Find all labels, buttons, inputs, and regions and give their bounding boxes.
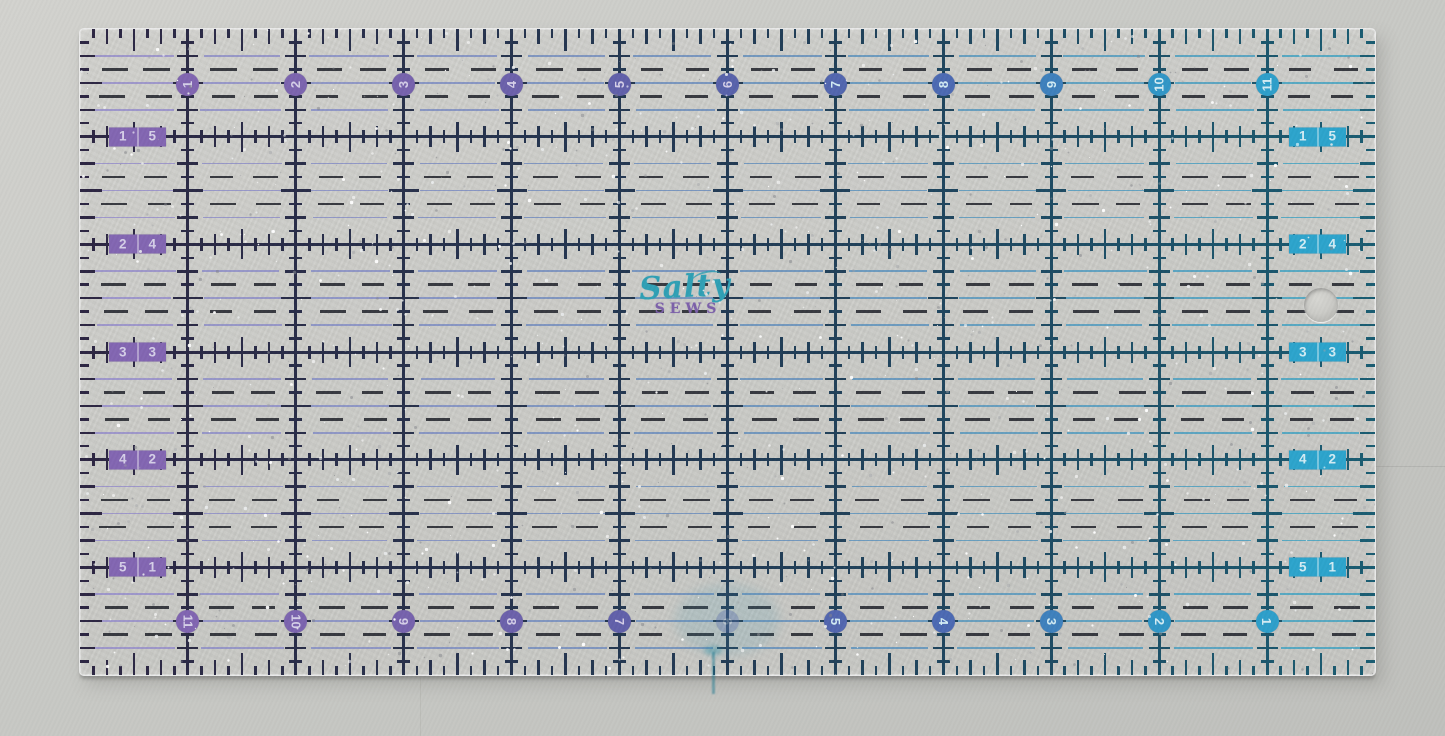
- inch-number-bottom: 11: [176, 610, 199, 633]
- inch-number-bottom-label: 10: [289, 614, 302, 628]
- edge-tick-right: [1360, 55, 1375, 58]
- quarter-inch-line: [632, 270, 715, 272]
- tick-mark: [1279, 453, 1282, 466]
- tick-mark: [861, 126, 864, 147]
- tick-mark: [106, 449, 109, 470]
- eighth-inch-dash: [858, 418, 884, 421]
- edge-tick-right: [1366, 283, 1375, 286]
- tick-mark: [1144, 405, 1174, 408]
- tick-mark: [376, 342, 379, 363]
- tick-mark: [937, 660, 950, 663]
- tick-mark: [376, 449, 379, 470]
- tick-mark: [505, 41, 518, 44]
- inch-number-top-label: 5: [613, 81, 626, 88]
- eighth-inch-dash: [576, 418, 600, 421]
- tick-mark: [794, 130, 797, 143]
- tick-mark: [956, 561, 959, 574]
- quarter-inch-line: [958, 109, 1034, 111]
- eighth-inch-dash: [1119, 391, 1145, 394]
- tick-mark: [740, 130, 743, 143]
- eighth-inch-dash: [147, 526, 174, 529]
- tick-mark: [1063, 346, 1066, 359]
- tick-mark: [397, 41, 410, 44]
- edge-tick-top: [376, 29, 379, 44]
- tick-mark: [829, 526, 842, 529]
- quarter-inch-line: [1068, 647, 1144, 649]
- quarter-inch-line: [635, 297, 713, 299]
- eighth-inch-dash: [316, 391, 342, 394]
- tick-mark: [1045, 68, 1058, 71]
- edge-tick-left: [80, 162, 95, 165]
- quarter-inch-line: [957, 620, 1034, 622]
- eighth-inch-dash: [685, 391, 709, 394]
- tick-mark: [505, 337, 518, 340]
- tick-mark: [996, 552, 999, 582]
- tick-mark: [200, 346, 203, 359]
- eighth-inch-dash: [794, 526, 816, 529]
- tick-mark: [289, 472, 302, 475]
- tick-mark: [505, 472, 518, 475]
- eighth-inch-dash: [320, 283, 344, 286]
- tick-mark: [613, 364, 626, 367]
- tick-mark: [1023, 557, 1026, 578]
- tick-mark: [829, 364, 842, 367]
- tick-mark: [1171, 346, 1174, 359]
- eighth-inch-dash: [363, 633, 386, 636]
- eighth-inch-dash: [576, 633, 600, 636]
- tick-mark: [613, 122, 626, 125]
- quarter-inch-line: [849, 620, 928, 622]
- tick-mark: [524, 561, 527, 574]
- eighth-inch-dash: [1289, 68, 1311, 71]
- quarter-inch-line: [200, 593, 279, 595]
- row-label-right-value-a: 3: [1289, 343, 1317, 362]
- edge-tick-top: [537, 29, 540, 44]
- quarter-inch-line: [309, 486, 388, 488]
- quarter-inch-line: [848, 163, 928, 165]
- quarter-inch-line: [204, 297, 282, 299]
- edge-tick-bottom: [672, 653, 675, 675]
- tick-mark: [1257, 216, 1278, 219]
- eighth-inch-dash: [686, 203, 712, 206]
- tick-mark: [825, 647, 846, 650]
- tick-mark: [349, 337, 352, 367]
- edge-tick-bottom: [429, 660, 432, 675]
- eighth-inch-dash: [856, 310, 881, 313]
- tick-mark: [181, 337, 194, 340]
- tick-mark: [969, 342, 972, 363]
- quarter-inch-line: [420, 513, 499, 515]
- tick-mark: [1144, 297, 1174, 300]
- inch-number-bottom: 10: [284, 610, 307, 633]
- tick-mark: [928, 405, 958, 408]
- tick-mark: [173, 297, 203, 300]
- edge-tick-top: [1077, 29, 1080, 44]
- eighth-inch-dash: [1290, 606, 1313, 609]
- tick-mark: [1185, 234, 1188, 255]
- edge-tick-left: [80, 82, 102, 85]
- edge-tick-bottom: [1320, 653, 1323, 675]
- tick-mark: [537, 234, 540, 255]
- tick-mark: [1225, 346, 1228, 359]
- tick-mark: [1261, 230, 1274, 233]
- tick-mark: [214, 342, 217, 363]
- quarter-inch-line: [744, 163, 821, 165]
- quarter-inch-line: [959, 163, 1038, 165]
- tick-mark: [609, 109, 630, 112]
- eighth-inch-dash: [536, 418, 561, 421]
- tick-mark: [672, 552, 675, 582]
- tick-mark: [721, 526, 734, 529]
- quarter-inch-line: [417, 297, 497, 299]
- tick-mark: [721, 445, 734, 448]
- tick-mark: [767, 453, 770, 466]
- tick-mark: [268, 557, 271, 578]
- eighth-inch-dash: [860, 606, 884, 609]
- row-label-right-value-b: 2: [1319, 450, 1347, 469]
- eighth-inch-dash: [1290, 499, 1314, 502]
- eighth-inch-dash: [792, 95, 817, 98]
- quarter-inch-line: [742, 620, 819, 622]
- eighth-inch-dash: [903, 526, 930, 529]
- tick-mark: [825, 593, 846, 596]
- quarter-inch-line: [309, 513, 392, 515]
- tick-mark: [721, 364, 734, 367]
- tick-mark: [937, 203, 950, 206]
- tick-mark: [1261, 176, 1274, 179]
- tick-mark: [1045, 391, 1058, 394]
- tick-mark: [1153, 257, 1166, 260]
- edge-tick-left: [80, 230, 89, 233]
- tick-mark: [393, 593, 414, 596]
- edge-tick-top: [214, 29, 217, 44]
- tick-mark: [177, 55, 198, 58]
- tick-mark: [1041, 539, 1062, 542]
- quarter-inch-line: [636, 486, 715, 488]
- edge-tick-bottom: [1225, 666, 1228, 675]
- inch-number-top: 10: [1148, 73, 1171, 96]
- tick-mark: [848, 561, 851, 574]
- quarter-inch-line: [849, 270, 927, 272]
- eighth-inch-dash: [1182, 68, 1208, 71]
- eighth-inch-dash: [210, 176, 233, 179]
- tick-mark: [1131, 449, 1134, 470]
- tick-mark: [591, 449, 594, 470]
- quarter-inch-line: [201, 647, 284, 649]
- edge-tick-top: [254, 29, 257, 38]
- edge-tick-left: [80, 620, 102, 623]
- quarter-inch-line: [635, 647, 713, 649]
- eighth-inch-dash: [467, 499, 493, 502]
- eighth-inch-dash: [1008, 391, 1033, 394]
- tick-mark: [829, 445, 842, 448]
- quarter-inch-line: [742, 405, 820, 407]
- tick-mark: [501, 216, 522, 219]
- tick-mark: [281, 346, 284, 359]
- quarter-inch-line: [740, 378, 823, 380]
- tick-mark: [173, 512, 203, 515]
- tick-mark: [551, 130, 554, 143]
- tick-mark: [609, 593, 630, 596]
- edge-tick-top: [322, 29, 325, 44]
- edge-tick-bottom: [537, 660, 540, 675]
- tick-mark: [92, 238, 95, 251]
- tick-mark: [605, 130, 608, 143]
- edge-tick-top: [308, 29, 311, 38]
- eighth-inch-dash: [1115, 95, 1138, 98]
- tick-mark: [289, 203, 302, 206]
- tick-mark: [825, 162, 846, 165]
- tick-mark: [181, 633, 194, 636]
- tick-mark: [686, 346, 689, 359]
- tick-mark: [902, 561, 905, 574]
- inch-number-top-label: 7: [829, 81, 842, 88]
- quarter-inch-line: [959, 405, 1035, 407]
- tick-mark: [1347, 557, 1350, 578]
- tick-mark: [1279, 130, 1282, 143]
- tick-mark: [1117, 561, 1120, 574]
- tick-mark: [214, 449, 217, 470]
- tick-mark: [289, 633, 302, 636]
- eighth-inch-dash: [749, 203, 775, 206]
- tick-mark: [181, 230, 194, 233]
- tick-mark: [1045, 445, 1058, 448]
- edge-tick-bottom: [308, 666, 311, 675]
- tick-mark: [389, 405, 419, 408]
- eighth-inch-dash: [686, 68, 709, 71]
- tick-mark: [632, 453, 635, 466]
- tick-mark: [416, 453, 419, 466]
- edge-tick-top: [362, 29, 365, 38]
- quarter-inch-line: [850, 217, 927, 219]
- tick-mark: [281, 297, 311, 300]
- quarter-inch-line: [635, 513, 711, 515]
- quarter-inch-line: [848, 593, 928, 595]
- edge-tick-left: [80, 606, 89, 609]
- quarter-inch-line: [1283, 109, 1362, 111]
- tick-mark: [362, 238, 365, 251]
- quarter-inch-line: [417, 540, 497, 542]
- edge-tick-top: [807, 29, 810, 44]
- edge-tick-left: [80, 149, 89, 152]
- eighth-inch-dash: [320, 310, 346, 313]
- tick-mark: [181, 41, 194, 44]
- quarter-inch-line: [960, 324, 1036, 326]
- quarter-inch-line: [849, 109, 929, 111]
- tick-mark: [753, 234, 756, 255]
- quarter-inch-line: [633, 82, 713, 84]
- tick-mark: [1239, 126, 1242, 147]
- eighth-inch-dash: [1072, 68, 1097, 71]
- quarter-inch-line: [959, 217, 1035, 219]
- tick-mark: [214, 234, 217, 255]
- edge-tick-top: [686, 29, 689, 38]
- tick-mark: [1144, 238, 1147, 251]
- tick-mark: [308, 453, 311, 466]
- eighth-inch-dash: [900, 418, 925, 421]
- tick-mark: [1360, 561, 1363, 574]
- eighth-inch-dash: [901, 203, 927, 206]
- tick-mark: [1153, 526, 1166, 529]
- eighth-inch-dash: [1009, 283, 1034, 286]
- tick-mark: [1261, 41, 1274, 44]
- edge-tick-bottom: [956, 666, 959, 675]
- tick-mark: [937, 472, 950, 475]
- inch-number-top: 4: [500, 73, 523, 96]
- tick-mark: [1104, 122, 1107, 152]
- edge-tick-right: [1366, 95, 1375, 98]
- eighth-inch-dash: [688, 526, 713, 529]
- edge-tick-left: [80, 512, 102, 515]
- edge-tick-top: [632, 29, 635, 38]
- edge-tick-left: [80, 337, 89, 340]
- edge-tick-top: [713, 29, 716, 38]
- tick-mark: [825, 378, 846, 381]
- edge-tick-top: [902, 29, 905, 38]
- tick-mark: [177, 162, 198, 165]
- edge-tick-top: [969, 29, 972, 44]
- tick-mark: [397, 337, 410, 340]
- tick-mark: [268, 126, 271, 147]
- eighth-inch-dash: [424, 176, 451, 179]
- eighth-inch-dash: [360, 68, 386, 71]
- tick-mark: [505, 122, 518, 125]
- quarter-inch-line: [525, 297, 606, 299]
- edge-tick-top: [1104, 29, 1107, 51]
- tick-mark: [416, 238, 419, 251]
- eighth-inch-dash: [424, 499, 451, 502]
- tick-mark: [456, 122, 459, 152]
- edge-tick-left: [80, 432, 95, 435]
- edge-tick-right: [1353, 82, 1375, 85]
- tick-mark: [389, 238, 392, 251]
- tick-mark: [609, 539, 630, 542]
- tick-mark: [1261, 526, 1274, 529]
- eighth-inch-dash: [576, 606, 598, 609]
- tick-mark: [996, 229, 999, 259]
- tick-mark: [501, 539, 522, 542]
- quarter-inch-line: [959, 55, 1036, 57]
- tick-mark: [456, 552, 459, 582]
- tick-mark: [393, 378, 414, 381]
- quarter-inch-line: [1067, 432, 1144, 434]
- quarter-inch-line: [956, 540, 1039, 542]
- tick-mark: [821, 346, 824, 359]
- inch-number-bottom-label: 11: [181, 614, 194, 628]
- eighth-inch-dash: [967, 526, 989, 529]
- edge-tick-bottom: [902, 666, 905, 675]
- tick-mark: [613, 499, 626, 502]
- row-label-left-value-a: 2: [109, 235, 137, 254]
- tick-mark: [613, 418, 626, 421]
- tick-mark: [1153, 283, 1166, 286]
- tick-mark: [888, 122, 891, 152]
- tick-mark: [767, 238, 770, 251]
- tick-mark: [1131, 557, 1134, 578]
- eighth-inch-dash: [105, 606, 128, 609]
- edge-tick-top: [133, 29, 136, 51]
- tick-mark: [613, 257, 626, 260]
- tick-mark: [289, 176, 302, 179]
- tick-mark: [672, 122, 675, 152]
- eighth-inch-dash: [318, 203, 344, 206]
- quarter-inch-line: [1174, 486, 1251, 488]
- tick-mark: [753, 342, 756, 363]
- tick-mark: [1149, 324, 1170, 327]
- tick-mark: [1117, 130, 1120, 143]
- edge-tick-top: [767, 29, 770, 38]
- edge-tick-bottom: [1023, 660, 1026, 675]
- edge-tick-right: [1360, 593, 1375, 596]
- edge-tick-left: [80, 41, 89, 44]
- edge-tick-left: [80, 109, 95, 112]
- tick-mark: [929, 561, 932, 574]
- edge-tick-bottom: [416, 666, 419, 675]
- row-label-left: 51: [109, 558, 166, 577]
- tick-mark: [996, 122, 999, 152]
- tick-mark: [613, 310, 626, 313]
- row-label-right-value-b: 1: [1319, 558, 1347, 577]
- tick-mark: [605, 238, 608, 251]
- eighth-inch-dash: [1071, 526, 1096, 529]
- edge-tick-top: [645, 29, 648, 44]
- quarter-inch-line: [740, 109, 823, 111]
- edge-tick-top: [740, 29, 743, 38]
- tick-mark: [177, 593, 198, 596]
- edge-tick-bottom: [794, 666, 797, 675]
- tick-mark: [289, 68, 302, 71]
- tick-mark: [241, 552, 244, 582]
- row-label-left-value-a: 4: [109, 450, 137, 469]
- eighth-inch-dash: [1182, 95, 1205, 98]
- quarter-inch-line: [1174, 432, 1252, 434]
- tick-mark: [937, 499, 950, 502]
- quarter-inch-line: [200, 190, 283, 192]
- edge-tick-left: [80, 378, 95, 381]
- tick-mark: [825, 216, 846, 219]
- tick-mark: [1153, 176, 1166, 179]
- eighth-inch-dash: [752, 418, 777, 421]
- eighth-inch-dash: [467, 176, 493, 179]
- photo-surface: 1234567891011111098765432115243342511524…: [0, 0, 1445, 736]
- tick-mark: [285, 647, 306, 650]
- edge-tick-bottom: [659, 666, 662, 675]
- inch-number-bottom: 8: [500, 610, 523, 633]
- tick-mark: [937, 257, 950, 260]
- row-label-left: 24: [109, 235, 166, 254]
- tick-mark: [1261, 580, 1274, 583]
- eighth-inch-dash: [1008, 633, 1031, 636]
- tick-mark: [1023, 234, 1026, 255]
- eighth-inch-dash: [967, 606, 990, 609]
- tick-mark: [1153, 41, 1166, 44]
- tick-mark: [200, 561, 203, 574]
- tick-mark: [1261, 553, 1274, 556]
- eighth-inch-dash: [1006, 176, 1028, 179]
- tick-mark: [505, 68, 518, 71]
- tick-mark: [416, 561, 419, 574]
- tick-mark: [1153, 68, 1166, 71]
- eighth-inch-dash: [795, 283, 817, 286]
- eighth-inch-dash: [750, 391, 774, 394]
- tick-mark: [591, 126, 594, 147]
- eighth-inch-dash: [143, 68, 170, 71]
- edge-tick-bottom: [160, 660, 163, 675]
- quarter-inch-line: [309, 55, 389, 57]
- tick-mark: [281, 405, 311, 408]
- tick-mark: [505, 176, 518, 179]
- edge-tick-right: [1360, 109, 1375, 112]
